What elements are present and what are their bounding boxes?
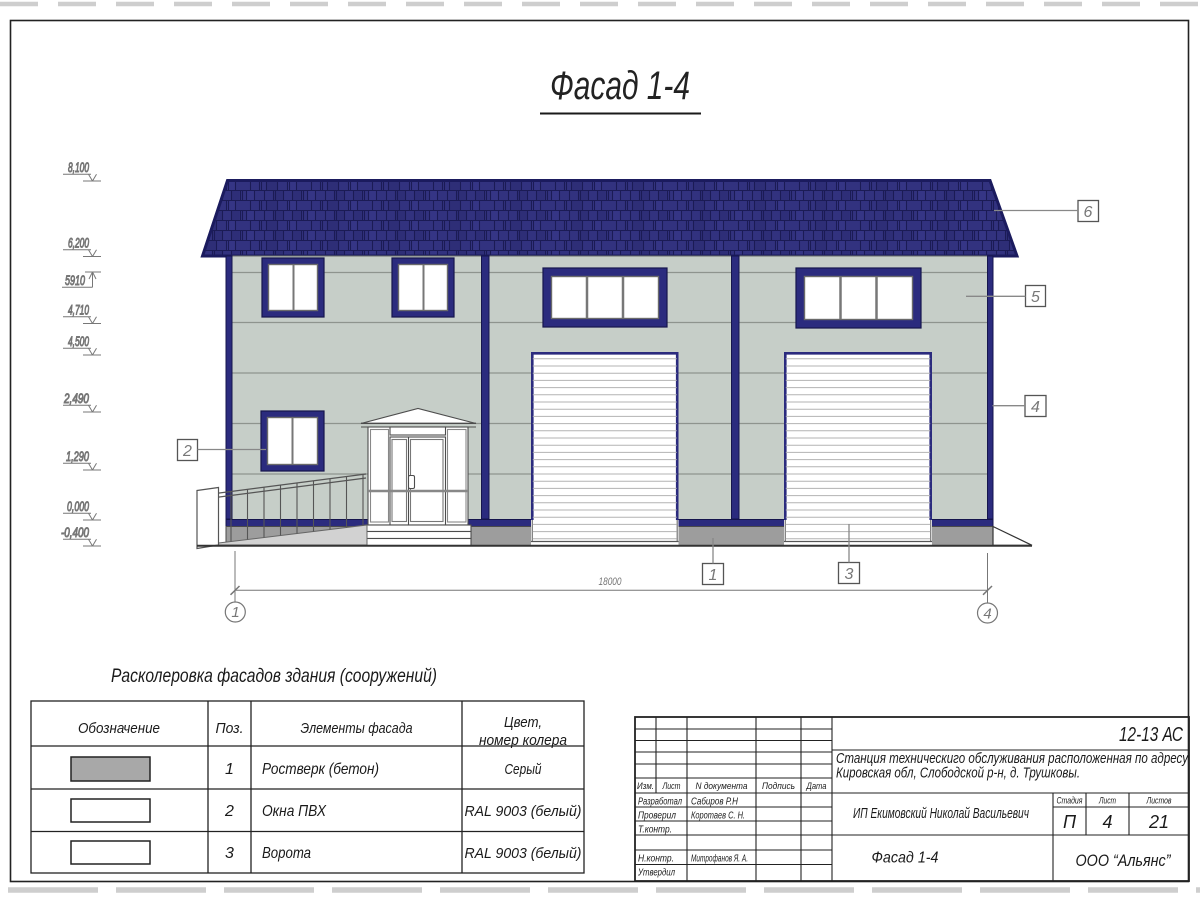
svg-text:Сабиров Р.Н: Сабиров Р.Н: [691, 796, 739, 808]
svg-text:Кировская обл, Слободской р-н,: Кировская обл, Слободской р-н, д. Трушко…: [836, 766, 1080, 782]
svg-text:Расколеровка фасадов здания (с: Расколеровка фасадов здания (сооружений): [111, 666, 437, 687]
svg-text:1: 1: [709, 567, 718, 584]
svg-text:4,710: 4,710: [68, 303, 89, 318]
svg-text:Разработал: Разработал: [638, 796, 682, 808]
svg-text:Окна ПВХ: Окна ПВХ: [262, 803, 327, 820]
svg-text:RAL 9003 (белый): RAL 9003 (белый): [465, 845, 582, 862]
svg-text:Лист: Лист: [1098, 796, 1116, 807]
svg-text:5: 5: [1031, 289, 1040, 306]
svg-text:3: 3: [845, 566, 854, 583]
svg-text:Серый: Серый: [505, 761, 543, 778]
svg-text:Листов: Листов: [1146, 796, 1172, 807]
svg-text:ООО “Альянс”: ООО “Альянс”: [1076, 851, 1172, 870]
svg-text:Цвет,: Цвет,: [504, 714, 542, 731]
svg-text:Фасад 1-4: Фасад 1-4: [872, 850, 939, 867]
svg-text:Дата: Дата: [806, 781, 827, 792]
svg-text:4: 4: [1102, 812, 1112, 832]
svg-text:3: 3: [225, 845, 234, 862]
svg-text:ИП Екимовский Николай Васильев: ИП Екимовский Николай Васильевич: [853, 805, 1029, 822]
svg-text:Утвердил: Утвердил: [637, 868, 675, 879]
svg-text:2: 2: [182, 443, 192, 460]
svg-text:8,100: 8,100: [68, 160, 89, 175]
svg-text:RAL 9003 (белый): RAL 9003 (белый): [465, 803, 582, 820]
svg-text:Ворота: Ворота: [262, 845, 311, 862]
svg-text:Митрофанов Я. А.: Митрофанов Я. А.: [691, 853, 748, 865]
svg-text:0,000: 0,000: [67, 499, 89, 514]
svg-text:21: 21: [1148, 812, 1169, 832]
svg-text:Т.контр.: Т.контр.: [638, 825, 672, 836]
svg-text:4: 4: [983, 606, 991, 623]
svg-text:Н.контр.: Н.контр.: [638, 854, 674, 865]
svg-text:12-13 АС: 12-13 АС: [1119, 724, 1183, 746]
svg-text:Стадия: Стадия: [1057, 796, 1083, 807]
svg-text:Поз.: Поз.: [216, 720, 244, 737]
svg-text:4: 4: [1031, 399, 1040, 416]
svg-text:Подпись: Подпись: [762, 781, 795, 792]
svg-text:Коротаев С. Н.: Коротаев С. Н.: [691, 811, 745, 822]
svg-text:1,290: 1,290: [66, 449, 89, 464]
svg-text:Элементы фасада: Элементы фасада: [301, 720, 413, 737]
svg-text:5910: 5910: [65, 273, 85, 288]
svg-text:Ростверк (бетон): Ростверк (бетон): [262, 761, 379, 778]
svg-text:N документа: N документа: [696, 781, 748, 792]
svg-text:6: 6: [1084, 204, 1093, 221]
svg-text:Фасад 1-4: Фасад 1-4: [550, 64, 690, 108]
svg-text:номер колера: номер колера: [479, 732, 567, 749]
svg-text:1: 1: [231, 604, 239, 621]
svg-text:2,490: 2,490: [63, 391, 89, 406]
svg-text:4,500: 4,500: [68, 334, 89, 349]
svg-text:Обозначение: Обозначение: [78, 720, 160, 737]
svg-text:Изм.: Изм.: [637, 781, 654, 792]
svg-text:2: 2: [224, 803, 234, 820]
svg-text:Проверил: Проверил: [638, 811, 676, 822]
svg-text:18000: 18000: [599, 576, 623, 588]
svg-text:Лист: Лист: [662, 781, 681, 792]
svg-text:-0,400: -0,400: [61, 525, 89, 540]
svg-text:1: 1: [225, 761, 234, 778]
svg-text:6,200: 6,200: [68, 236, 89, 251]
svg-text:П: П: [1063, 812, 1077, 832]
